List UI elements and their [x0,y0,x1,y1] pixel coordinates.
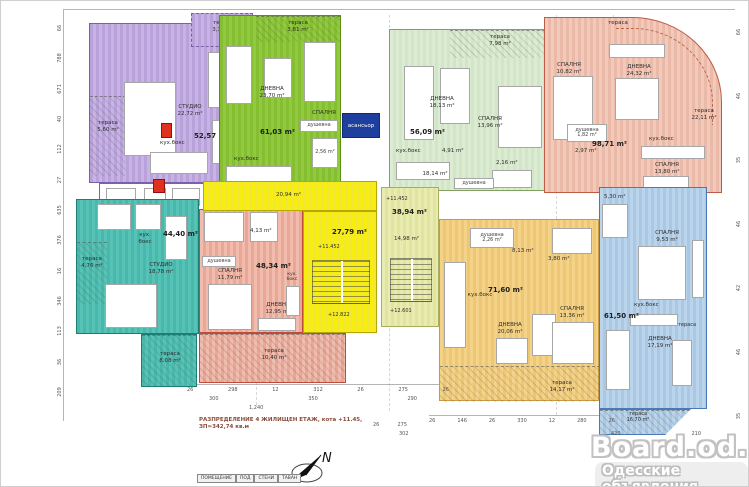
room-label-hall: 4,91 m² [442,148,464,155]
caption-line-1: РАЗПРЕДЕЛЕНИЕ 4 ЖИЛИЩЕН ЕТАЖ, кота +11.4… [199,417,389,424]
apartment-blue: 5,30 m² СПАЛНЯ 9,53 m² кух.бокс 61,50 m²… [599,187,707,409]
dimension-value: 112 [57,145,63,155]
fixture-wc [135,204,161,230]
elevator-box: асансьор [342,113,380,138]
room-label-hall: 4,13 m² [250,228,272,235]
room-label-bath: 2,16 m² [496,160,518,167]
dimension-value: 635 [57,205,63,215]
room-label-terrace: тераса 3,81 m² [266,20,330,33]
apartment-red-terrace: тераса 10,40 m² [199,333,346,383]
room-label-terrace: тераса 22,11 m² [687,108,721,121]
elevator-label: асансьор [348,123,374,129]
area-label: 61,03 m² [260,128,295,136]
fixture-bath [552,228,592,254]
dimension-value: 12 [549,418,555,424]
dimension-value: 40 [57,116,63,122]
room-label-bedroom: СПАЛНЯ 13,80 m² [639,162,695,175]
room-label-bedroom: СПАЛНЯ [308,110,340,117]
room-label-studio: СТУДИО 18,78 m² [133,262,189,275]
room-label-terrace: тераса [593,20,643,27]
wc-box: 2,56 m² [312,138,338,168]
dimension-value: 12 [272,387,278,393]
area-label: 48,34 m² [256,262,291,270]
dimension-value: 42 [736,285,742,291]
apartment-teal-terrace: тераса 8,08 m² [141,334,197,387]
terrace-hatch [77,242,107,304]
room-label-kitchen: кух.бокс [634,302,659,309]
apartment-green: тераса 3,81 m² ДНЕВНА 23,70 m² СПАЛНЯ 61… [219,15,341,187]
kitchen-counter [641,146,705,159]
apartment-red: 4,13 m² душевна 48,34 m² кух. бокс СПАЛН… [199,209,303,333]
stairwell-yellow: 27,79 m² +11.452 +12.822 [303,211,377,333]
furniture-wardrobe [692,240,704,298]
dimension-value: ПОД [236,474,254,483]
area-label: 61,50 m² [604,312,639,320]
room-label-inner: 14,98 m² [394,236,419,243]
dimension-value: 46 [736,93,742,99]
furniture-sofa [606,330,630,390]
apartment-pink: тераса СПАЛНЯ 10,82 m² душевна 1,82 m² 2… [544,17,722,193]
furniture-sofa [609,44,665,58]
dimension-value: 346 [57,296,63,306]
kitchen-counter [444,262,466,348]
dimension-value: 66 [57,25,63,31]
apartment-teal: тераса 4,76 m² кух. бокс 44,40 m² СТУДИО… [76,199,199,334]
room-label-bedroom: СПАЛНЯ 9,53 m² [642,230,692,243]
area-label: 71,60 m² [488,286,523,294]
room-label-kitchen: кух.бокс [234,156,259,163]
dimension-value: 113 [57,327,63,337]
dimension-value: 26 [609,418,615,424]
dimension-value: 16 [57,267,63,273]
north-label: N [322,451,332,466]
area-label: 56,09 m² [410,128,445,136]
dimension-value: 312 [313,387,323,393]
stair-flight [390,258,432,302]
fixture-bath [492,170,532,188]
room-label-terrace: тераса [678,322,696,328]
kitchen-column [165,216,187,260]
legend-table: ПОМЕЩЕНИЕПОДСТЕНИТАВАН [197,474,301,483]
apartment-orange: душевна 2,26 m² 8,13 m² 3,80 m² кух.бокс… [439,219,599,401]
room-label-kitchen: кух.бокс [160,140,185,147]
stairwell-lime: +11.452 38,94 m² 14,98 m² +12.601 [381,187,439,327]
level-label: +12.822 [328,312,350,318]
room-label-studio: СТУДИО 22,72 m² [160,104,220,117]
terrace-hatch [90,96,126,176]
furniture-sofa [258,318,296,331]
dimension-value: 300 [209,396,219,402]
dimension-value: 275 [398,387,408,393]
caption-line-2: ЗП=342,74 кв.м [199,424,389,431]
dimension-value: 788 [57,54,63,64]
fixture-bath [97,204,131,230]
dimension-total: 1,240 [249,405,263,411]
dimension-value: ТАВАН [278,474,301,483]
dimension-value: 146 [457,418,467,424]
room-label-terrace: тераса 8,08 m² [142,351,198,364]
stair-flight [312,260,370,304]
dimension-value: 66 [736,29,742,35]
room-label-living: ДНЕВНА 24,32 m² [613,64,665,77]
shower-box: душевна [454,178,494,189]
dimension-value: 26 [489,418,495,424]
apartment-lightgreen: тераса 7,98 m² ДНЕВНА 18,13 m² СПАЛНЯ 13… [389,29,556,191]
dimension-value: СТЕНИ [254,474,277,483]
dimension-value: 35 [736,157,742,163]
area-label: 44,40 m² [163,230,198,238]
shaft-box [161,123,172,138]
dim-line-bottom [187,384,449,385]
room-label-kitchen: кух. бокс [133,232,157,245]
shower-box: душевна [202,256,236,267]
dimension-value: 26 [357,387,363,393]
room-label-kitchen: кух.бокс [649,136,674,143]
kitchen-counter [226,166,292,182]
watermark-title: Board.od.ua [591,432,749,463]
room-label-terrace: тераса 4,76 m² [77,256,107,269]
dimension-value: 350 [308,396,318,402]
room-label-living: ДНЕВНА 20,06 m² [482,322,538,335]
dimension-value: 298 [228,387,238,393]
room-label-bedroom: СПАЛНЯ 10,82 m² [545,62,593,75]
shower-box: душевна [300,120,338,132]
dimension-value: 302 [399,431,409,437]
room-label-terrace: тераса 14,17 m² [532,380,592,393]
frame-top-line [63,9,735,10]
floor-plan-page: 6678867140112276353761634611336209 66463… [0,0,749,487]
dimension-value: 209 [57,387,63,397]
furniture-bed [552,322,594,364]
fixture-bath [602,204,628,238]
shower-box: душевна 2,26 m² [470,228,514,248]
dimension-value: 376 [57,236,63,246]
area-label: 38,94 m² [392,208,427,216]
kitchen-counter [150,152,208,174]
area-label: 98,71 m² [592,140,627,148]
room-label-living: ДНЕВНА 23,70 m² [244,86,300,99]
dimension-value: 35 [736,413,742,419]
dimension-column-right: 66463546424635 [734,29,744,419]
room-label-bath: 3,80 m² [548,256,570,263]
room-label-hall: 8,13 m² [512,248,534,255]
level-label: +11.452 [386,196,408,202]
kitchen-column [286,286,300,316]
room-label-bedroom: СПАЛНЯ 13,36 m² [546,306,598,319]
room-label-terrace: тераса 16,70 m² [610,411,666,423]
furniture-bed [105,284,157,328]
dimension-value: 26 [429,418,435,424]
furniture-bed [304,42,336,102]
dimension-value: 36 [57,358,63,364]
room-label-terrace: тераса 10,40 m² [244,348,304,361]
dimension-value: 671 [57,84,63,94]
dimension-column-left: 6678867140112276353761634611336209 [55,25,65,395]
furniture-bed [208,284,252,330]
stairwell-yellow-corridor: 20,94 m² [203,181,377,211]
dimension-value: ПОМЕЩЕНИЕ [197,474,236,483]
dimension-value: 280 [577,418,587,424]
room-label-kitchen: кух.бокс [396,148,421,155]
dim-line-bottom-right [429,415,615,416]
furniture-sofa [496,338,528,364]
dimension-value: 26 [443,387,449,393]
room-label-terrace: тераса 7,98 m² [468,34,532,47]
room-label-hall: 20,94 m² [276,192,301,199]
dimension-row: 300350290 [209,396,417,402]
furniture-bed [638,246,686,300]
drawing-caption: РАЗПРЕДЕЛЕНИЕ 4 ЖИЛИЩЕН ЕТАЖ, кота +11.4… [199,417,389,432]
room-label-living: ДНЕВНА 18,13 m² [416,96,468,109]
dimension-value: 46 [736,221,742,227]
room-label-bedroom: СПАЛНЯ 11,79 m² [208,268,252,281]
dimension-value: 27 [57,176,63,182]
dimension-value: 330 [517,418,527,424]
room-label-terrace: тераса 5,60 m² [90,120,126,133]
level-label: +11.452 [318,244,340,250]
fixture-bath [204,212,244,242]
furniture-table [615,78,659,120]
dimension-value: 275 [397,422,407,428]
level-label: +12.601 [390,308,412,314]
room-label-balcony: 5,30 m² [604,194,626,201]
dimension-row: 26298123122627526 [187,387,449,393]
room-label-bath: 2,97 m² [575,148,597,155]
room-label-bedroom: СПАЛНЯ 13,96 m² [462,116,518,129]
watermark-subtitle: Одесские объявления [595,462,748,487]
room-label-kitchen: кух. бокс [282,272,302,283]
corridor-label: 18,14 m² [417,171,453,178]
furniture-tv [672,340,692,386]
fixture-wc [250,212,278,242]
dimension-value: 46 [736,349,742,355]
dimension-value: 290 [407,396,417,402]
dimension-value: 26 [187,387,193,393]
shaft-box [153,179,165,193]
dimension-row: 26146263301228026 [429,418,615,424]
area-label: 27,79 m² [332,228,367,236]
